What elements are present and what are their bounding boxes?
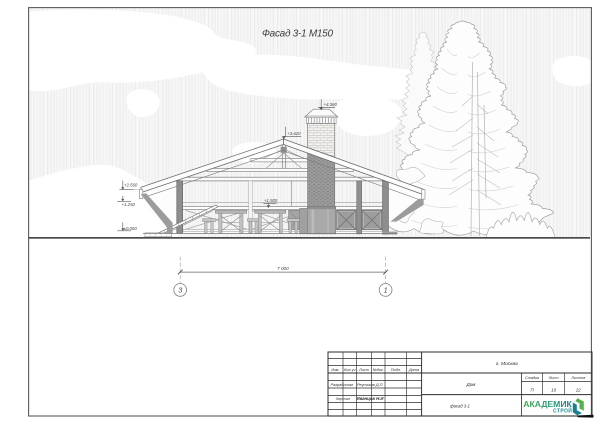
svg-text:г. Москва: г. Москва xyxy=(496,361,518,367)
svg-text:Листов: Листов xyxy=(570,376,585,380)
svg-text:Иванцов Н.И: Иванцов Н.И xyxy=(357,396,385,401)
svg-text:+1.250: +1.250 xyxy=(122,202,136,207)
svg-text:Подп.: Подп. xyxy=(391,368,401,372)
svg-text:Лист: Лист xyxy=(548,376,559,380)
svg-text:№док.: №док. xyxy=(373,368,384,372)
svg-text:Изм.: Изм. xyxy=(331,368,339,372)
svg-text:Чертил: Чертил xyxy=(336,396,351,401)
svg-text:Дата: Дата xyxy=(408,368,419,372)
svg-text:Дом: Дом xyxy=(466,382,477,387)
svg-text:22: 22 xyxy=(575,387,581,392)
svg-text:3: 3 xyxy=(178,286,182,295)
svg-text:Реутская Д.П.: Реутская Д.П. xyxy=(357,382,384,387)
svg-text:Разработал: Разработал xyxy=(331,382,354,387)
svg-text:Фасад 3-1 М150: Фасад 3-1 М150 xyxy=(262,28,333,39)
svg-text:Лист: Лист xyxy=(358,368,369,372)
svg-text:1: 1 xyxy=(384,286,388,295)
svg-text:+4.360: +4.360 xyxy=(324,102,338,107)
svg-text:+1.500: +1.500 xyxy=(264,198,278,203)
svg-text:Стадия: Стадия xyxy=(525,376,539,380)
svg-text:+3.620: +3.620 xyxy=(287,131,301,136)
svg-text:+2.560: +2.560 xyxy=(124,182,138,187)
svg-text:СТРОЙ: СТРОЙ xyxy=(553,407,572,415)
svg-text:7 000: 7 000 xyxy=(277,266,289,271)
svg-text:±0.000: ±0.000 xyxy=(124,226,138,231)
svg-text:10: 10 xyxy=(551,387,556,392)
svg-text:Кол.уч: Кол.уч xyxy=(344,368,355,372)
svg-text:фасад 3-1: фасад 3-1 xyxy=(450,404,470,409)
